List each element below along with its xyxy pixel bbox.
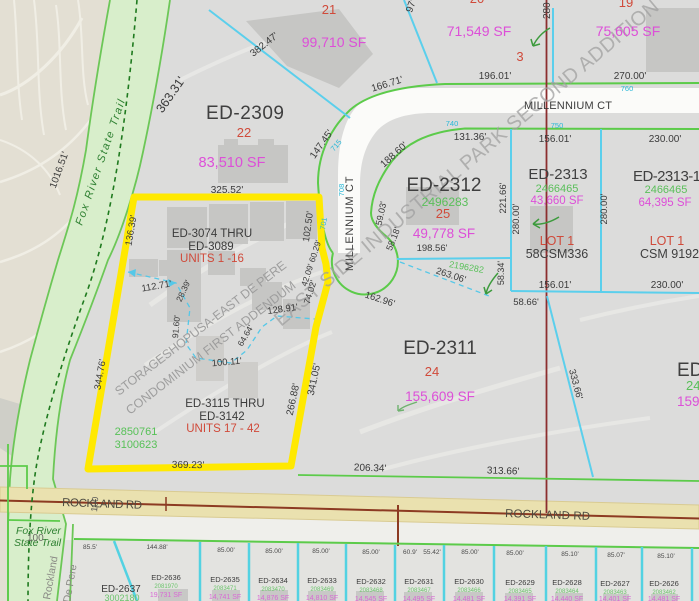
svg-text:85.00': 85.00' (362, 549, 380, 556)
svg-text:ED-2629: ED-2629 (505, 578, 535, 587)
svg-text:24: 24 (425, 364, 439, 379)
svg-text:ED-2312: ED-2312 (407, 175, 482, 196)
svg-text:58CSM336: 58CSM336 (526, 247, 589, 261)
svg-text:58.34': 58.34' (496, 261, 506, 286)
svg-text:313.66': 313.66' (487, 465, 520, 477)
svg-text:ED-2631: ED-2631 (404, 577, 434, 586)
svg-text:708: 708 (337, 184, 346, 197)
svg-text:58.66': 58.66' (513, 297, 539, 308)
svg-text:280.00': 280.00' (599, 193, 610, 224)
svg-text:21: 21 (322, 2, 336, 17)
svg-text:ED-2630: ED-2630 (454, 577, 484, 586)
svg-text:230.00': 230.00' (649, 134, 682, 145)
svg-text:14,481 SF: 14,481 SF (648, 596, 680, 601)
svg-text:85.07': 85.07' (607, 552, 625, 559)
svg-text:2083469: 2083469 (310, 587, 334, 593)
svg-text:85.00': 85.00' (461, 549, 479, 556)
svg-text:246: 246 (686, 378, 699, 393)
svg-text:14,440 SF: 14,440 SF (551, 596, 583, 601)
svg-text:UNITS 1 -16: UNITS 1 -16 (180, 253, 244, 265)
svg-text:ED-2627: ED-2627 (600, 579, 630, 588)
svg-text:LOT 1: LOT 1 (540, 234, 575, 248)
svg-text:270.00': 270.00' (614, 71, 647, 82)
svg-text:14,545 SF: 14,545 SF (355, 596, 387, 601)
svg-text:ED-2628: ED-2628 (552, 578, 582, 587)
svg-text:91.60': 91.60' (170, 315, 182, 339)
svg-text:19: 19 (619, 0, 633, 10)
svg-text:14,810 SF: 14,810 SF (306, 595, 338, 601)
svg-text:750: 750 (551, 121, 564, 130)
svg-text:ED-3115 THRU: ED-3115 THRU (185, 398, 264, 410)
svg-text:230.00': 230.00' (651, 280, 684, 291)
svg-text:156.01': 156.01' (539, 134, 572, 145)
svg-text:ED-3142: ED-3142 (199, 411, 244, 423)
svg-text:2466465: 2466465 (645, 184, 688, 196)
svg-text:131.36': 131.36' (454, 132, 487, 143)
svg-text:UNITS 17 - 42: UNITS 17 - 42 (186, 423, 260, 435)
svg-text:2081970: 2081970 (154, 584, 178, 590)
svg-text:ED-3074 THRU: ED-3074 THRU (172, 228, 252, 240)
svg-text:14,401 SF: 14,401 SF (599, 596, 631, 601)
svg-text:83,510 SF: 83,510 SF (199, 155, 266, 171)
svg-text:75,605 SF: 75,605 SF (596, 23, 661, 39)
svg-text:2850761: 2850761 (115, 426, 158, 438)
svg-text:198.56': 198.56' (417, 243, 448, 254)
svg-text:ED-2635: ED-2635 (210, 575, 240, 584)
svg-text:14,876 SF: 14,876 SF (257, 595, 289, 601)
svg-text:ED-2311: ED-2311 (403, 338, 477, 359)
svg-text:2083471: 2083471 (213, 586, 237, 592)
svg-text:ED-3089: ED-3089 (188, 241, 233, 253)
svg-text:CSM 9192: CSM 9192 (640, 247, 699, 261)
svg-text:14,391 SF: 14,391 SF (504, 596, 536, 601)
svg-text:325.52': 325.52' (211, 185, 244, 196)
svg-text:ED-2626: ED-2626 (649, 579, 679, 588)
svg-text:22: 22 (237, 125, 251, 140)
svg-text:3: 3 (516, 49, 523, 64)
svg-text:14,495 SF: 14,495 SF (403, 596, 435, 601)
svg-text:2083467: 2083467 (407, 588, 431, 594)
svg-text:ED-2313: ED-2313 (528, 166, 587, 183)
svg-text:3002180: 3002180 (104, 593, 139, 601)
svg-text:85.00': 85.00' (217, 547, 235, 554)
svg-text:2466465: 2466465 (536, 183, 579, 195)
svg-text:760: 760 (621, 84, 634, 93)
svg-text:85.00': 85.00' (506, 550, 524, 557)
svg-text:ED-2636: ED-2636 (151, 573, 181, 582)
svg-text:ED-2634: ED-2634 (258, 576, 288, 585)
svg-text:144.88': 144.88' (146, 544, 167, 551)
svg-text:2083465: 2083465 (508, 589, 532, 595)
svg-text:2083470: 2083470 (261, 587, 285, 593)
svg-text:43,660 SF: 43,660 SF (530, 195, 583, 207)
svg-text:85.00': 85.00' (265, 548, 283, 555)
svg-text:25: 25 (436, 206, 450, 221)
svg-text:14,481 SF: 14,481 SF (453, 596, 485, 601)
svg-text:2083464: 2083464 (555, 589, 579, 595)
svg-text:280.00': 280.00' (511, 203, 522, 234)
svg-text:280: 280 (542, 2, 553, 19)
svg-text:221.66': 221.66' (498, 182, 509, 213)
svg-text:55.42': 55.42' (423, 549, 441, 556)
svg-text:14,741 SF: 14,741 SF (209, 594, 241, 601)
svg-text:19,731 SF: 19,731 SF (150, 592, 182, 599)
svg-text:71,549 SF: 71,549 SF (447, 23, 512, 39)
svg-text:85.00': 85.00' (312, 548, 330, 555)
svg-text:20: 20 (470, 0, 484, 6)
svg-text:740: 740 (446, 119, 459, 128)
svg-text:ED-2313-1: ED-2313-1 (633, 168, 699, 185)
svg-text:159,6: 159,6 (677, 394, 699, 409)
svg-text:MILLENNIUM CT: MILLENNIUM CT (524, 100, 612, 112)
svg-text:156.01': 156.01' (539, 280, 572, 291)
svg-text:2083466: 2083466 (457, 588, 481, 594)
svg-text:196.01': 196.01' (479, 71, 512, 82)
svg-text:99,710 SF: 99,710 SF (302, 34, 367, 50)
svg-text:369.23': 369.23' (172, 460, 205, 472)
svg-text:49,778 SF: 49,778 SF (413, 226, 475, 241)
svg-text:85.5': 85.5' (83, 544, 97, 551)
svg-text:206.34': 206.34' (354, 462, 387, 474)
svg-text:LOT 1: LOT 1 (650, 234, 685, 248)
svg-text:ED-2309: ED-2309 (206, 103, 284, 124)
svg-text:155,609 SF: 155,609 SF (405, 389, 475, 404)
svg-text:100: 100 (89, 496, 100, 512)
svg-text:64,395 SF: 64,395 SF (638, 197, 691, 209)
svg-text:ED-2633: ED-2633 (307, 576, 337, 585)
svg-text:100: 100 (27, 533, 44, 544)
svg-text:85.10': 85.10' (657, 553, 675, 560)
svg-text:ED-2632: ED-2632 (356, 577, 386, 586)
svg-text:3100623: 3100623 (115, 439, 158, 451)
svg-text:60.9': 60.9' (403, 549, 417, 556)
svg-text:85.10': 85.10' (561, 551, 579, 558)
svg-text:2083468: 2083468 (359, 588, 383, 594)
